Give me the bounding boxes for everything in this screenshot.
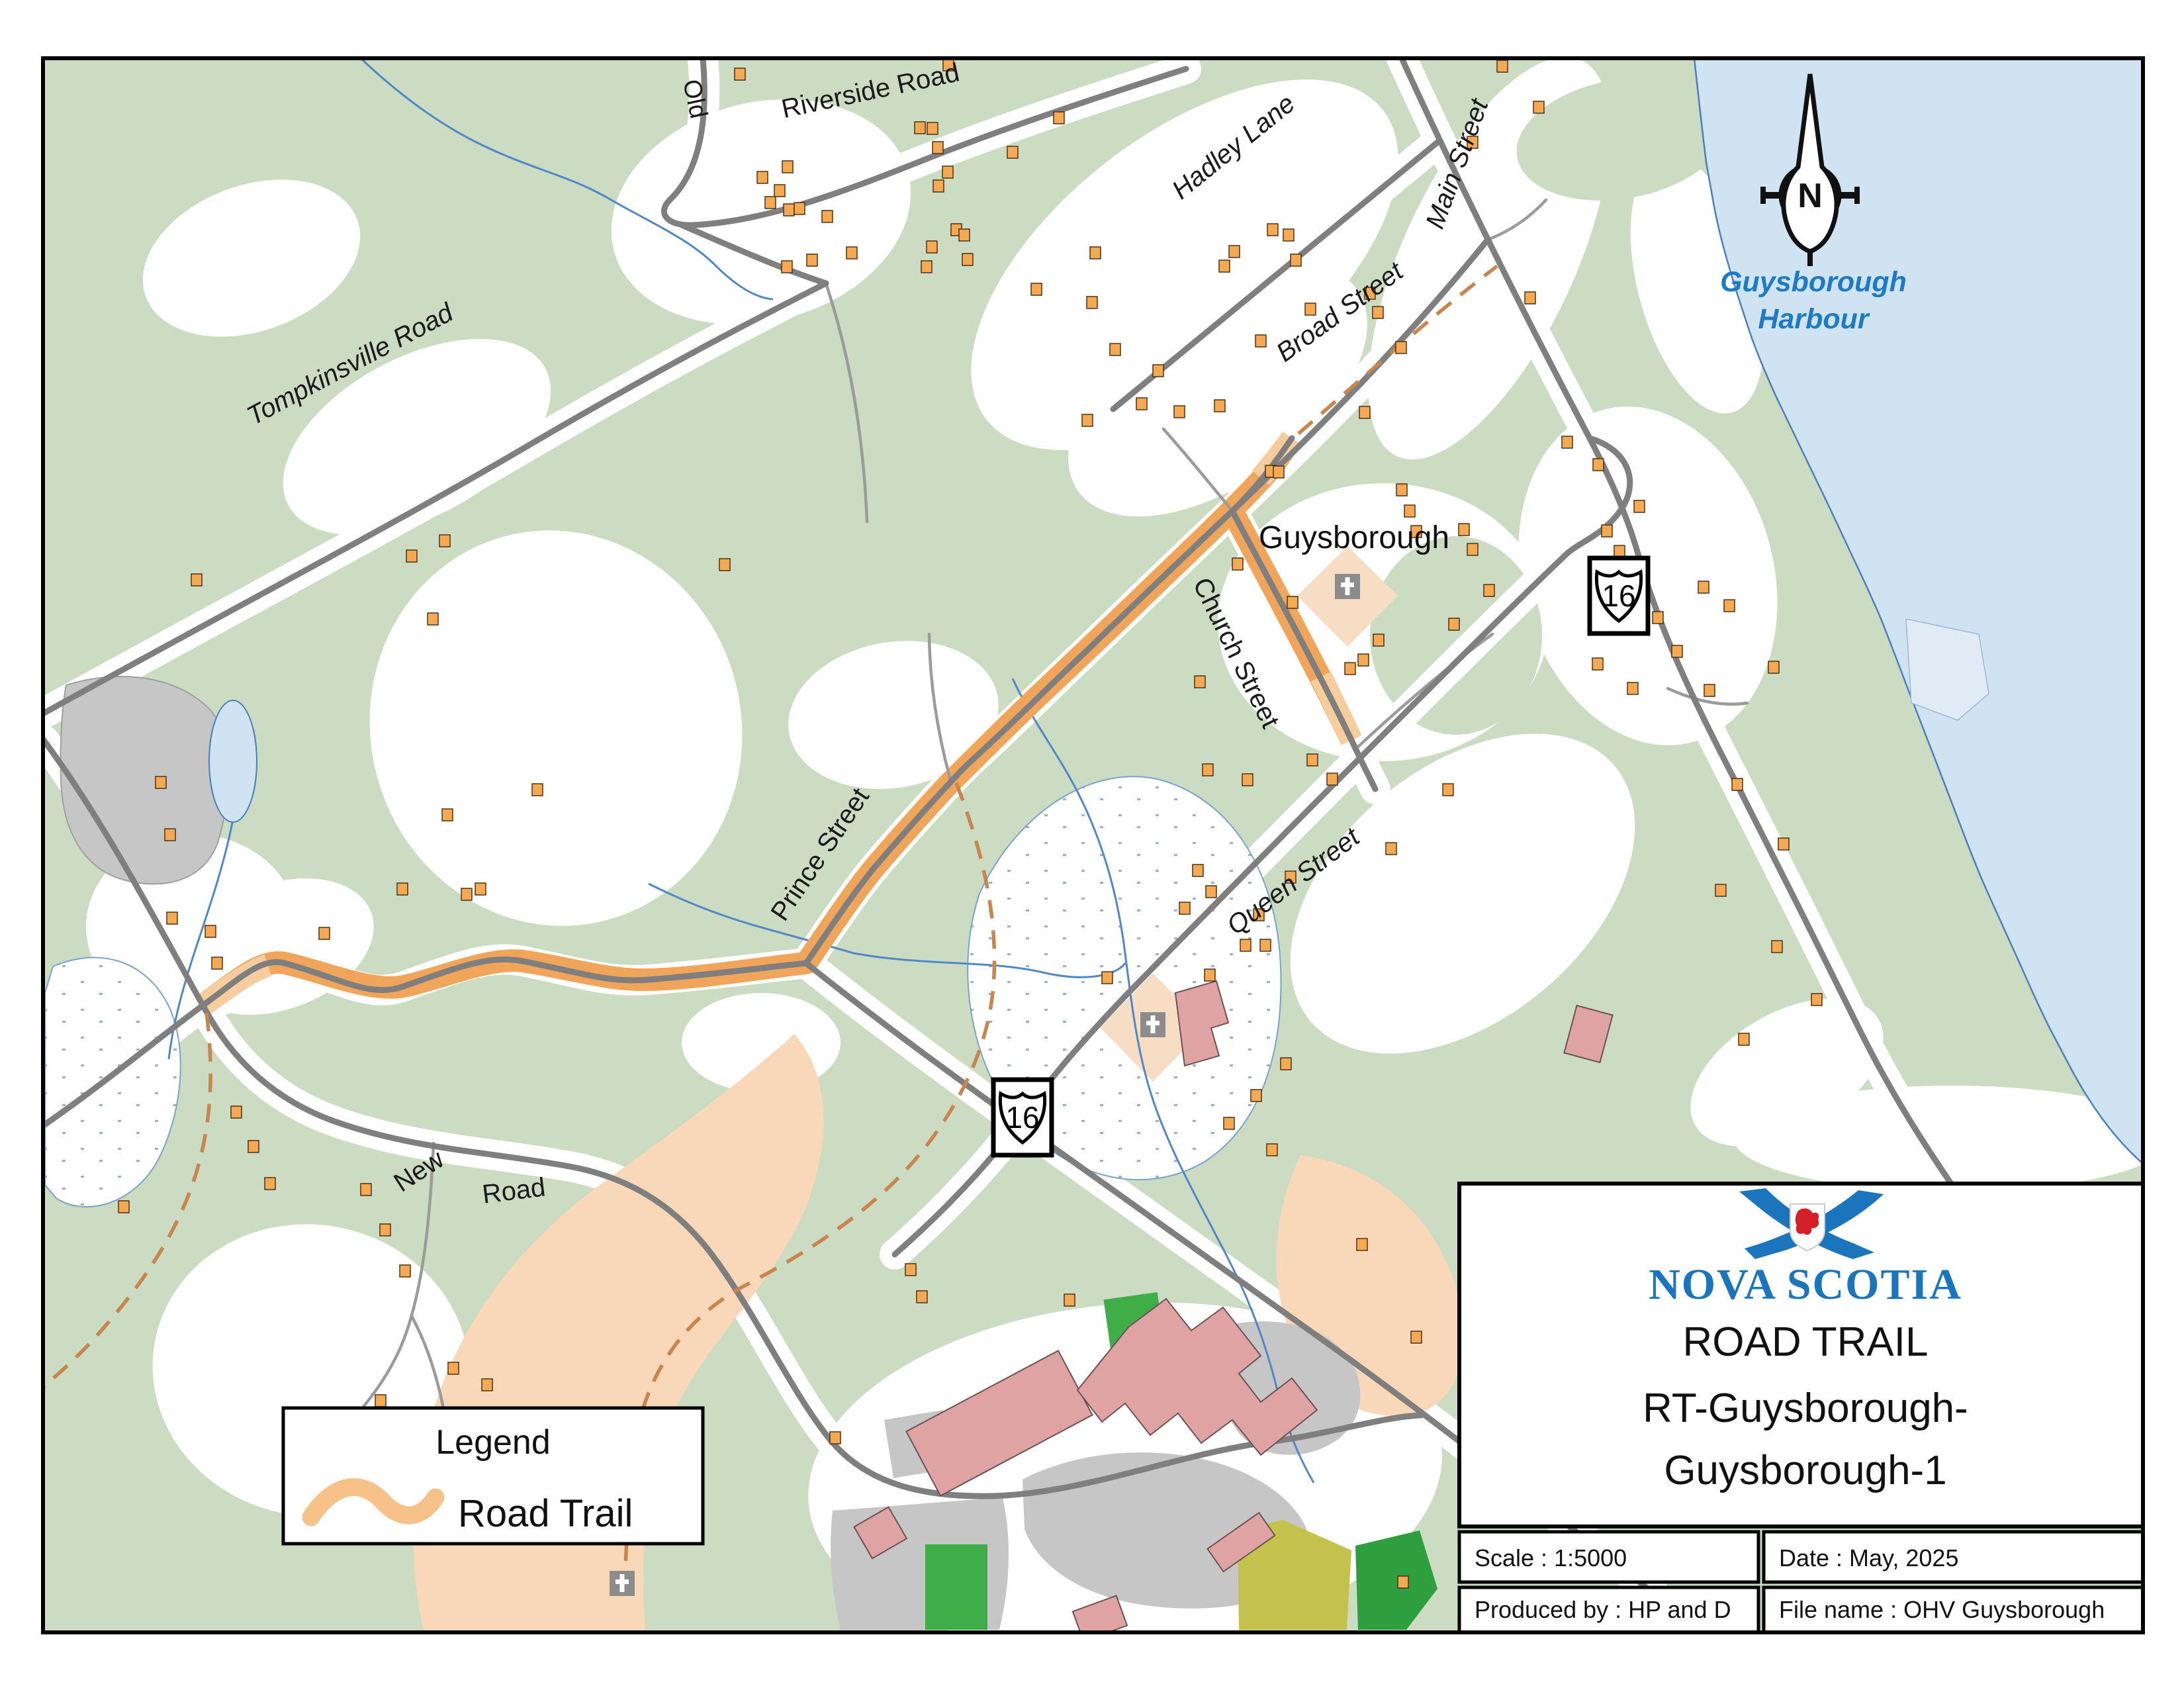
building-icon bbox=[1219, 260, 1230, 272]
building-icon bbox=[1193, 865, 1203, 876]
building-icon bbox=[205, 925, 216, 937]
building-icon bbox=[1232, 558, 1243, 570]
building-icon bbox=[1704, 684, 1715, 696]
building-icon bbox=[1627, 682, 1638, 694]
building-icon bbox=[380, 1224, 390, 1236]
town-label: Guysborough bbox=[1259, 520, 1449, 555]
building-icon bbox=[1229, 246, 1240, 258]
church-icon bbox=[1140, 1012, 1165, 1037]
building-icon bbox=[735, 68, 745, 80]
trail-id-line1: RT-Guysborough- bbox=[1643, 1385, 1968, 1431]
building-icon bbox=[1396, 342, 1406, 353]
building-icon bbox=[231, 1106, 242, 1118]
building-icon bbox=[1373, 634, 1384, 646]
svg-text:16: 16 bbox=[1005, 1100, 1039, 1135]
building-icon bbox=[933, 142, 943, 154]
legend-title: Legend bbox=[435, 1423, 551, 1462]
building-icon bbox=[942, 166, 953, 178]
building-icon bbox=[1283, 229, 1294, 241]
building-icon bbox=[475, 883, 486, 895]
building-icon bbox=[1768, 661, 1779, 673]
building-icon bbox=[406, 550, 417, 562]
building-icon bbox=[428, 613, 438, 625]
building-icon bbox=[1195, 676, 1205, 688]
building-icon bbox=[191, 574, 202, 586]
building-icon bbox=[1054, 112, 1064, 124]
church-icon bbox=[610, 1571, 635, 1596]
building-icon bbox=[1698, 581, 1709, 593]
building-icon bbox=[1614, 545, 1625, 557]
produced-by-text: Produced by : HP and D bbox=[1475, 1596, 1731, 1623]
building-icon bbox=[1449, 618, 1459, 630]
building-icon bbox=[719, 559, 730, 571]
building-icon bbox=[1396, 484, 1407, 496]
building-icon bbox=[1224, 1117, 1234, 1129]
building-icon bbox=[482, 1379, 492, 1391]
building-icon bbox=[1357, 1239, 1367, 1250]
building-icon bbox=[1255, 335, 1266, 347]
building-icon bbox=[1811, 994, 1822, 1006]
building-icon bbox=[156, 776, 166, 788]
building-icon bbox=[1672, 645, 1682, 657]
building-icon bbox=[1287, 596, 1298, 608]
building-icon bbox=[1242, 774, 1253, 786]
building-icon bbox=[1260, 939, 1271, 951]
building-icon bbox=[1373, 306, 1383, 318]
file-name-text: File name : OHV Guysborough bbox=[1779, 1596, 2105, 1623]
pond bbox=[209, 700, 257, 822]
building-icon bbox=[361, 1184, 371, 1196]
date-text: Date : May, 2025 bbox=[1779, 1544, 1958, 1571]
building-icon bbox=[1345, 663, 1355, 675]
building-icon bbox=[933, 180, 944, 192]
building-icon bbox=[915, 122, 925, 134]
building-icon bbox=[1031, 283, 1042, 295]
harbour-label-line1: Guysborough bbox=[1720, 266, 1907, 298]
building-icon bbox=[1110, 344, 1120, 355]
building-icon bbox=[1267, 224, 1278, 236]
map-canvas: OldRiverside RoadHadley LaneMain StreetB… bbox=[0, 0, 2184, 1688]
building-icon bbox=[1064, 1294, 1075, 1306]
route-16-shield-icon: 16 bbox=[993, 1080, 1052, 1155]
building-icon bbox=[807, 254, 817, 266]
building-icon bbox=[830, 1432, 841, 1444]
building-icon bbox=[439, 535, 450, 547]
building-icon bbox=[1653, 612, 1663, 624]
svg-text:16: 16 bbox=[1602, 579, 1635, 613]
building-icon bbox=[1732, 778, 1743, 790]
building-icon bbox=[167, 912, 177, 924]
building-icon bbox=[1525, 292, 1535, 304]
building-icon bbox=[927, 122, 938, 134]
title-block: NOVA SCOTIA ROAD TRAIL RT-Guysborough- G… bbox=[1459, 1184, 2143, 1632]
building-icon bbox=[1327, 773, 1338, 785]
building-icon bbox=[905, 1264, 916, 1276]
org-name: NOVA SCOTIA bbox=[1649, 1260, 1962, 1309]
building-icon bbox=[757, 171, 768, 183]
building-icon bbox=[1359, 406, 1370, 418]
building-icon bbox=[265, 1178, 275, 1190]
building-icon bbox=[1251, 1090, 1261, 1102]
building-icon bbox=[1739, 1033, 1749, 1045]
building-icon bbox=[1715, 884, 1726, 896]
building-icon bbox=[319, 927, 330, 939]
building-icon bbox=[927, 241, 937, 253]
building-icon bbox=[1724, 600, 1735, 612]
trail-id-line2: Guysborough-1 bbox=[1664, 1448, 1946, 1493]
building-icon bbox=[1291, 254, 1301, 266]
building-icon bbox=[1592, 658, 1603, 670]
building-icon bbox=[1205, 969, 1215, 981]
building-icon bbox=[1484, 585, 1494, 596]
building-icon bbox=[1102, 972, 1113, 984]
building-icon bbox=[1203, 764, 1213, 776]
building-icon bbox=[248, 1141, 259, 1152]
building-icon bbox=[1214, 400, 1225, 412]
building-icon bbox=[1087, 297, 1097, 308]
building-icon bbox=[1411, 1331, 1422, 1343]
building-icon bbox=[921, 261, 932, 273]
building-icon bbox=[1206, 886, 1216, 898]
building-icon bbox=[1602, 525, 1612, 537]
building-icon bbox=[774, 185, 785, 197]
building-icon bbox=[1281, 1058, 1291, 1070]
building-icon bbox=[1443, 784, 1453, 796]
building-icon bbox=[1562, 436, 1572, 448]
route-16-shield-icon: 16 bbox=[1590, 558, 1648, 633]
building-icon bbox=[1082, 414, 1093, 426]
building-icon bbox=[846, 247, 857, 259]
building-icon bbox=[917, 1291, 927, 1303]
building-icon bbox=[1398, 1576, 1408, 1588]
building-icon bbox=[1358, 654, 1369, 666]
church-icon bbox=[1335, 574, 1360, 599]
building-icon bbox=[1240, 939, 1251, 951]
building-icon bbox=[1467, 543, 1478, 555]
building-icon bbox=[1174, 406, 1185, 418]
building-icon bbox=[794, 203, 805, 214]
building-icon bbox=[532, 784, 543, 796]
legend-box: Legend Road Trail bbox=[283, 1408, 703, 1544]
harbour-label-line2: Harbour bbox=[1758, 303, 1870, 335]
building-icon bbox=[1778, 838, 1789, 850]
building-icon bbox=[118, 1201, 129, 1213]
building-icon bbox=[1459, 524, 1469, 536]
building-icon bbox=[212, 957, 222, 969]
building-icon bbox=[782, 261, 792, 273]
building-icon bbox=[1007, 146, 1018, 158]
building-icon bbox=[1386, 843, 1396, 855]
building-icon bbox=[400, 1265, 410, 1277]
building-icon bbox=[1404, 505, 1415, 517]
scale-text: Scale : 1:5000 bbox=[1475, 1544, 1627, 1571]
building-icon bbox=[1634, 500, 1645, 512]
building-icon bbox=[1179, 902, 1190, 914]
building-icon bbox=[1153, 365, 1163, 377]
building-icon bbox=[1533, 101, 1544, 113]
building-icon bbox=[442, 809, 453, 821]
building-icon bbox=[375, 1395, 386, 1407]
building-icon bbox=[1593, 459, 1604, 471]
building-icon bbox=[1772, 941, 1782, 953]
building-icon bbox=[165, 829, 175, 841]
legend-item-road-trail: Road Trail bbox=[458, 1492, 633, 1535]
building-icon bbox=[1273, 466, 1284, 478]
building-icon bbox=[782, 161, 793, 173]
building-icon bbox=[962, 254, 973, 265]
building-icon bbox=[1307, 754, 1318, 766]
building-icon bbox=[397, 883, 408, 895]
svg-text:N: N bbox=[1797, 177, 1823, 215]
building-icon bbox=[1090, 247, 1101, 259]
building-icon bbox=[1267, 1144, 1277, 1156]
building-icon bbox=[1497, 60, 1508, 72]
doc-type: ROAD TRAIL bbox=[1683, 1319, 1929, 1365]
building-icon bbox=[959, 229, 970, 241]
building-icon bbox=[1136, 398, 1147, 410]
building-icon bbox=[765, 197, 776, 209]
building-icon bbox=[448, 1362, 459, 1374]
map-document-page: OldRiverside RoadHadley LaneMain StreetB… bbox=[0, 0, 2184, 1688]
building-icon bbox=[784, 204, 794, 216]
building-icon bbox=[822, 211, 833, 222]
building-icon bbox=[461, 888, 472, 900]
